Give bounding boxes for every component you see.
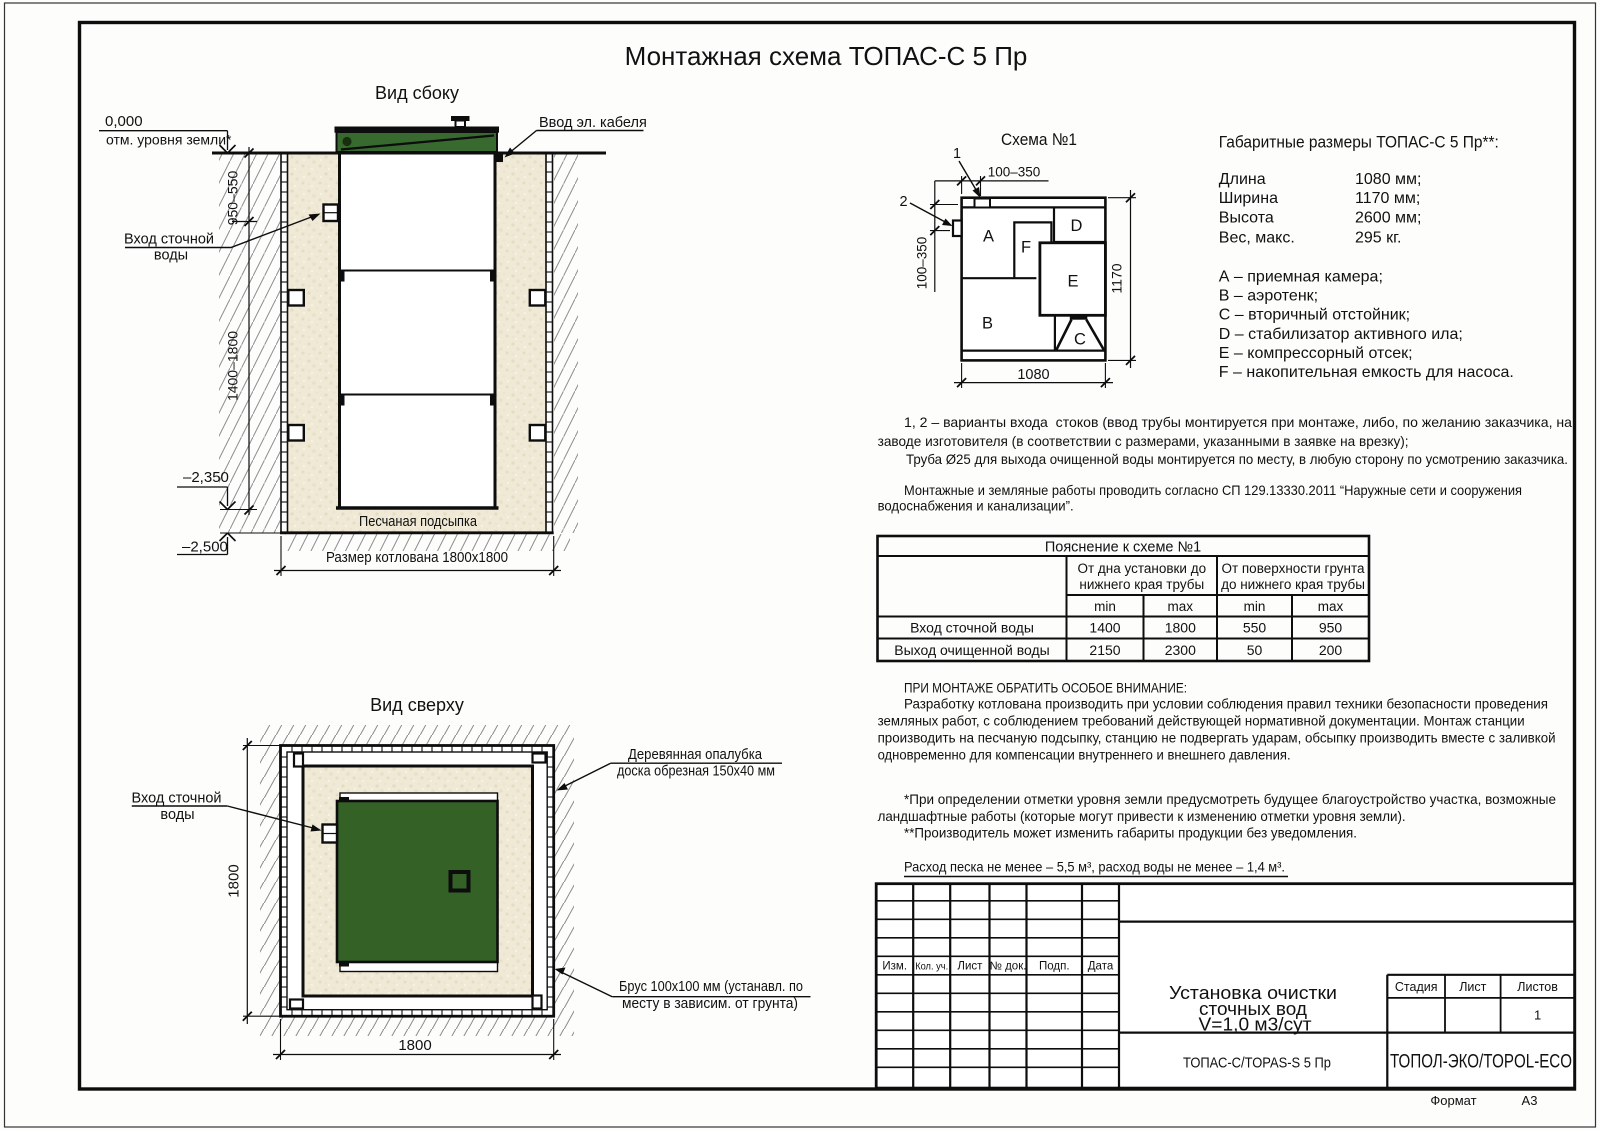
svg-text:ТОПАС-С/TOPAS-S 5 Пр: ТОПАС-С/TOPAS-S 5 Пр xyxy=(1183,1055,1331,1072)
svg-text:100–350: 100–350 xyxy=(915,237,930,290)
svg-text:–2,350: –2,350 xyxy=(183,469,229,486)
svg-text:2150: 2150 xyxy=(1089,642,1120,658)
svg-text:ТОПОЛ-ЭКО/TOPOL-ECO: ТОПОЛ-ЭКО/TOPOL-ECO xyxy=(1390,1051,1572,1073)
svg-text:С – вторичный отстойник;: С – вторичный отстойник; xyxy=(1219,307,1410,324)
svg-text:1800: 1800 xyxy=(1165,620,1196,636)
svg-text:2: 2 xyxy=(899,194,907,210)
svg-text:1, 2 – варианты входа стоков: 1, 2 – варианты входа стоков (ввод трубы… xyxy=(904,414,1572,430)
svg-text:0,000: 0,000 xyxy=(105,113,143,130)
svg-text:Песчаная подсыпка: Песчаная подсыпка xyxy=(359,514,478,530)
svg-text:Труба Ø25 для выхода очищенной: Труба Ø25 для выхода очищенной воды монт… xyxy=(906,451,1568,467)
svg-text:ПРИ МОНТАЖЕ ОБРАТИТЬ ОСОБОЕ ВН: ПРИ МОНТАЖЕ ОБРАТИТЬ ОСОБОЕ ВНИМАНИЕ: xyxy=(904,680,1187,696)
svg-text:заводе изготовителя (в соответ: заводе изготовителя (в соответствии с ра… xyxy=(878,433,1409,449)
svg-text:200: 200 xyxy=(1319,642,1343,658)
svg-text:F: F xyxy=(1021,239,1031,257)
svg-text:E: E xyxy=(1067,273,1078,291)
svg-text:Формат: Формат xyxy=(1430,1093,1476,1108)
svg-text:**Производитель может изменить: **Производитель может изменить габариты … xyxy=(904,825,1357,841)
svg-text:Лист: Лист xyxy=(957,961,983,973)
svg-text:Дата: Дата xyxy=(1088,961,1114,973)
svg-text:295 кг.: 295 кг. xyxy=(1355,230,1401,247)
svg-text:Ввод эл. кабеля: Ввод эл. кабеля xyxy=(539,115,647,131)
svg-text:Вход сточной воды: Вход сточной воды xyxy=(910,620,1034,636)
svg-text:950–550: 950–550 xyxy=(225,171,241,226)
svg-text:Е – компрессорный отсек;: Е – компрессорный отсек; xyxy=(1219,345,1413,362)
svg-text:D: D xyxy=(1071,217,1083,235)
svg-text:Вход сточной: Вход сточной xyxy=(131,791,221,807)
svg-text:1800: 1800 xyxy=(226,864,243,897)
svg-text:Монтажные и земляные работы пр: Монтажные и земляные работы проводить со… xyxy=(904,482,1522,498)
svg-text:1: 1 xyxy=(1534,1008,1541,1023)
svg-text:Ширина: Ширина xyxy=(1219,190,1278,207)
svg-text:отм. уровня земли*: отм. уровня земли* xyxy=(106,132,232,148)
svg-text:B: B xyxy=(982,315,993,333)
svg-text:Лист: Лист xyxy=(1459,980,1486,994)
svg-text:производить на песчаную подсып: производить на песчаную подсыпку, станци… xyxy=(878,730,1556,746)
svg-text:земляных работ, с соблюдением: земляных работ, с соблюдением требований… xyxy=(878,713,1525,729)
svg-text:1400: 1400 xyxy=(1089,620,1120,636)
svg-text:min: min xyxy=(1094,599,1116,614)
svg-text:воды: воды xyxy=(160,807,194,823)
svg-text:550: 550 xyxy=(1243,620,1267,636)
svg-text:до нижнего края трубы: до нижнего края трубы xyxy=(1221,577,1365,592)
svg-text:max: max xyxy=(1318,599,1344,614)
svg-text:Расход песка не менее – 5,5 м³: Расход песка не менее – 5,5 м³, расход в… xyxy=(904,859,1285,875)
svg-text:Габаритные размеры ТОПАС-С 5 П: Габаритные размеры ТОПАС-С 5 Пр**: xyxy=(1219,133,1499,152)
svg-text:1400–1800: 1400–1800 xyxy=(225,331,241,401)
svg-text:1080: 1080 xyxy=(1017,367,1049,383)
svg-text:V=1,0 м3/сут: V=1,0 м3/сут xyxy=(1199,1015,1312,1035)
svg-text:950: 950 xyxy=(1319,620,1343,636)
svg-text:100–350: 100–350 xyxy=(988,165,1041,180)
svg-text:Вид сбоку: Вид сбоку xyxy=(375,83,459,103)
svg-text:1: 1 xyxy=(953,146,961,162)
svg-text:Брус 100х100 мм (устанавл. по: Брус 100х100 мм (устанавл. по xyxy=(619,979,803,995)
svg-text:Деревянная опалубка: Деревянная опалубка xyxy=(628,747,763,763)
svg-text:Подп.: Подп. xyxy=(1039,961,1070,973)
svg-text:Монтажная схема ТОПАС-С 5 Пр: Монтажная схема ТОПАС-С 5 Пр xyxy=(625,41,1028,71)
svg-text:№ док.: № док. xyxy=(990,961,1027,973)
svg-text:нижнего края трубы: нижнего края трубы xyxy=(1079,577,1204,592)
svg-text:Длина: Длина xyxy=(1219,171,1266,188)
svg-text:Разработку котлована производи: Разработку котлована производить при усл… xyxy=(904,696,1548,712)
svg-text:воды: воды xyxy=(154,248,188,264)
svg-text:*При определении отметки уровн: *При определении отметки уровня земли пр… xyxy=(904,791,1556,807)
svg-text:ландшафтные работы (которые мо: ландшафтные работы (которые могут привес… xyxy=(878,808,1406,824)
svg-text:F – накопительная емкость для: F – накопительная емкость для насоса. xyxy=(1219,364,1514,381)
svg-text:Высота: Высота xyxy=(1219,210,1274,227)
svg-text:Размер котлована 1800х1800: Размер котлована 1800х1800 xyxy=(326,549,508,566)
svg-text:Схема №1: Схема №1 xyxy=(1001,130,1077,149)
svg-text:C: C xyxy=(1074,331,1086,349)
svg-text:А – приемная камера;: А – приемная камера; xyxy=(1219,269,1383,286)
svg-text:Вес, макс.: Вес, макс. xyxy=(1219,230,1295,247)
svg-text:А3: А3 xyxy=(1522,1093,1538,1108)
svg-text:1170 мм;: 1170 мм; xyxy=(1355,190,1420,207)
svg-text:max: max xyxy=(1168,599,1194,614)
svg-text:Вид сверху: Вид сверху xyxy=(370,695,464,715)
svg-text:Вход сточной: Вход сточной xyxy=(124,232,214,248)
svg-text:A: A xyxy=(983,228,994,246)
svg-text:2600 мм;: 2600 мм; xyxy=(1355,210,1421,227)
svg-text:1800: 1800 xyxy=(398,1037,431,1054)
svg-text:водоснабжения и канализации”.: водоснабжения и канализации”. xyxy=(878,498,1074,514)
svg-text:50: 50 xyxy=(1247,642,1263,658)
svg-text:одновременно для компенсации в: одновременно для компенсации внутреннего… xyxy=(878,747,1291,763)
svg-text:1170: 1170 xyxy=(1109,263,1125,293)
svg-text:2300: 2300 xyxy=(1165,642,1196,658)
svg-text:Изм.: Изм. xyxy=(882,961,907,973)
svg-text:Кол. уч.: Кол. уч. xyxy=(915,962,948,973)
svg-text:Листов: Листов xyxy=(1517,980,1558,994)
svg-text:1080 мм;: 1080 мм; xyxy=(1355,171,1421,188)
svg-text:В – аэротенк;: В – аэротенк; xyxy=(1219,288,1318,305)
svg-text:От дна установки до: От дна установки до xyxy=(1077,561,1206,576)
svg-text:min: min xyxy=(1244,599,1266,614)
svg-text:Выход очищенной воды: Выход очищенной воды xyxy=(894,642,1049,658)
svg-text:Пояснение к схеме №1: Пояснение к схеме №1 xyxy=(1045,540,1201,556)
svg-text:Стадия: Стадия xyxy=(1395,980,1438,994)
svg-text:доска обрезная 150х40 мм: доска обрезная 150х40 мм xyxy=(617,764,775,780)
svg-text:От поверхности грунта: От поверхности грунта xyxy=(1221,561,1365,576)
svg-text:–2,500: –2,500 xyxy=(182,539,228,556)
svg-text:D – стабилизатор активного ила: D – стабилизатор активного ила; xyxy=(1219,326,1463,343)
svg-text:месту в зависим. от грунта): месту в зависим. от грунта) xyxy=(622,996,798,1012)
